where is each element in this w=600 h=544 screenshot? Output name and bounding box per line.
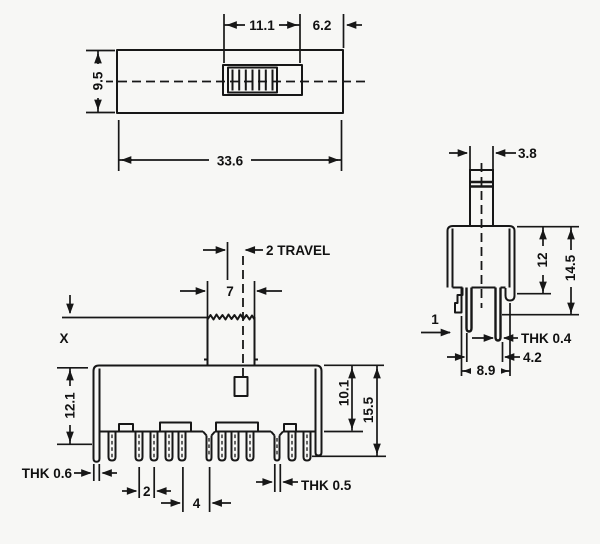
top-view: 11.1 6.2 9.5 33.6	[86, 14, 365, 171]
dim-travel: 2 TRAVEL	[203, 242, 330, 280]
dim-label-knob-width: 7	[226, 284, 234, 299]
side-terminal-left	[467, 288, 472, 332]
dim-body-to-pin-tip: 12.1	[57, 368, 92, 445]
front-center-hole	[235, 377, 248, 396]
front-knob-serrated-top	[208, 315, 255, 320]
dim-terminal-thickness: THK 0.4	[472, 331, 572, 346]
dim-label-step-width: 1	[431, 312, 439, 327]
dim-label-knob-offset: 6.2	[313, 18, 332, 33]
dim-overall-length: 33.6	[119, 120, 342, 171]
pin-centerlines	[112, 435, 307, 458]
dim-label-side-body-width: 8.9	[477, 363, 496, 378]
dim-pin-thickness: THK 0.5	[256, 464, 352, 493]
dim-knob-width: 7	[180, 284, 282, 299]
technical-drawing-page: 11.1 6.2 9.5 33.6	[0, 0, 600, 544]
dim-knob-offset: 6.2	[313, 14, 362, 48]
dim-label-knob-height: X	[59, 331, 68, 346]
side-view: 3.8 12 14.5 1	[421, 146, 579, 378]
dim-label-overall-length: 33.6	[217, 154, 244, 169]
dim-label-body-depth: 9.5	[91, 71, 106, 90]
front-pins	[109, 423, 311, 461]
top-view-slider-opening	[223, 65, 302, 95]
terminal-tabs	[119, 423, 296, 432]
front-view: 2 TRAVEL 7 X 12.1	[22, 242, 386, 512]
dim-step-width: 1	[421, 312, 450, 333]
dim-label-group-pitch: 4	[193, 496, 201, 511]
dim-label-travel: 2 TRAVEL	[266, 243, 330, 258]
dim-label-side-body-height: 12	[535, 252, 550, 267]
dim-label-pin-pitch: 2	[143, 484, 151, 499]
dim-label-terminal-span: 4.2	[523, 350, 542, 365]
dim-overall-height: 15.5	[312, 366, 386, 456]
dim-leg-thickness: THK 0.6	[22, 464, 117, 481]
side-terminal-right	[496, 288, 501, 341]
dim-group-pitch: 4	[161, 467, 231, 512]
dim-opening-width: 11.1	[224, 14, 300, 63]
dim-label-side-overall-height: 14.5	[563, 254, 578, 281]
dim-label-terminal-thickness: THK 0.4	[521, 331, 572, 346]
slide-switch-drawing: 11.1 6.2 9.5 33.6	[0, 0, 600, 544]
dim-label-opening-width: 11.1	[249, 18, 275, 33]
dim-pin-pitch: 2	[122, 467, 171, 499]
dim-label-leg-thickness: THK 0.6	[22, 466, 73, 481]
side-step-bracket	[455, 288, 463, 313]
dim-label-pin-thickness: THK 0.5	[301, 478, 352, 493]
dim-label-body-height: 10.1	[337, 379, 352, 406]
dim-label-overall-height: 15.5	[361, 396, 376, 423]
dim-label-shaft-width: 3.8	[518, 146, 537, 161]
dim-label-body-to-pin-tip: 12.1	[63, 392, 78, 419]
dim-knob-height: X	[59, 295, 207, 346]
top-view-knob-serrations	[233, 70, 273, 91]
